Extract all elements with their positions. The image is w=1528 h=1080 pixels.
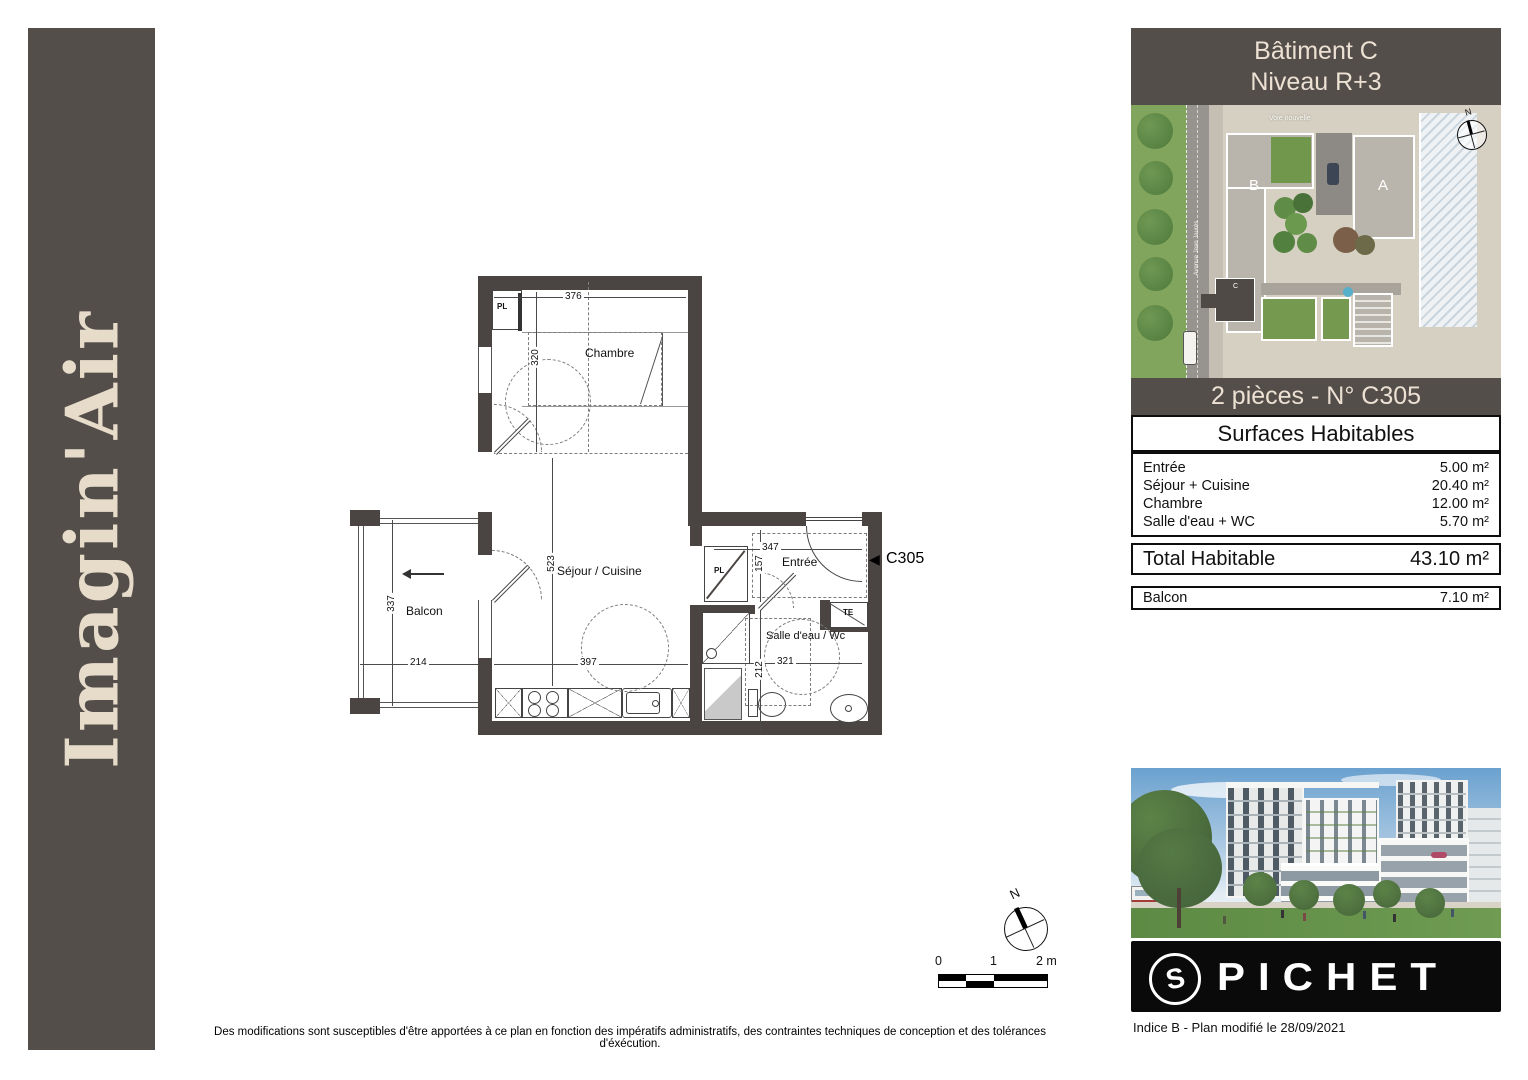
balcony-door-swing xyxy=(492,550,542,600)
render-person xyxy=(1393,914,1396,922)
footer-disclaimer: Des modifications sont susceptibles d'êt… xyxy=(200,1026,1060,1050)
row-value: 5.00 m² xyxy=(1440,459,1489,477)
wall-left-2 xyxy=(478,393,492,452)
render-tree xyxy=(1373,880,1401,908)
surfaces-title-text: Surfaces Habitables xyxy=(1218,421,1415,446)
site-sidewalk xyxy=(1209,105,1223,378)
room-label-sejour: Séjour / Cuisine xyxy=(557,564,642,578)
site-bus xyxy=(1183,331,1197,365)
wall-entree-top xyxy=(702,512,806,526)
pichet-logo-emblem-letter: S xyxy=(1163,961,1188,996)
site-compass-north-label: N xyxy=(1464,106,1473,117)
dim-label: 321 xyxy=(775,656,796,667)
table-row: Entrée 5.00 m² xyxy=(1143,459,1489,477)
table-row: Séjour + Cuisine 20.40 m² xyxy=(1143,477,1489,495)
site-roof-terraces xyxy=(1353,293,1393,347)
site-tree xyxy=(1139,161,1173,195)
total-label: Total Habitable xyxy=(1143,548,1275,571)
balcony-box: Balcon 7.10 m² xyxy=(1131,586,1501,610)
partition-sdb-left xyxy=(690,605,702,735)
panel-header-line2: Niveau R+3 xyxy=(1131,67,1501,98)
kitchen-cabinet-1 xyxy=(495,688,522,718)
balcony-stub-top xyxy=(350,510,380,526)
pichet-logo-emblem-icon: S xyxy=(1149,953,1201,1005)
dim-label: 214 xyxy=(408,657,429,668)
site-roofgarden-1 xyxy=(1261,297,1317,341)
wall-left-4 xyxy=(478,658,492,721)
scale-tick-2: 2 m xyxy=(1036,954,1057,968)
scale-seg xyxy=(939,975,966,981)
unit-entry-marker-label: C305 xyxy=(886,550,924,568)
scale-tick-0: 0 xyxy=(935,954,942,968)
closet-chambre-label: PL xyxy=(497,302,507,311)
site-car xyxy=(1327,163,1339,185)
render-tree xyxy=(1333,884,1365,916)
unit-entry-marker-icon: ◀ xyxy=(869,551,880,568)
site-tree xyxy=(1137,305,1173,341)
dim-label: 397 xyxy=(578,657,599,668)
scale-tick-1: 1 xyxy=(990,954,997,968)
partition-top xyxy=(690,512,702,546)
room-label-chambre: Chambre xyxy=(585,346,634,360)
row-label: Chambre xyxy=(1143,495,1203,513)
row-label: Séjour + Cuisine xyxy=(1143,477,1250,495)
render-building-far-right xyxy=(1468,808,1501,904)
dim-label: 523 xyxy=(546,553,557,574)
row-value: 20.40 m² xyxy=(1432,477,1489,495)
site-bush-brown xyxy=(1355,235,1375,255)
render-lawn xyxy=(1131,908,1501,938)
kitchen-sink-drain xyxy=(652,700,659,707)
revision-note: Indice B - Plan modifié le 28/09/2021 xyxy=(1133,1020,1345,1035)
bed-edge xyxy=(662,333,663,406)
window-sejour xyxy=(478,600,492,658)
balcony-label: Balcon xyxy=(1143,590,1187,606)
dim-line-376 xyxy=(494,297,686,298)
render-person xyxy=(1223,916,1226,924)
render-person xyxy=(1451,909,1454,917)
render-tree xyxy=(1415,888,1445,918)
building-render-image xyxy=(1131,768,1501,938)
site-street-top-label: Voie nouvelle xyxy=(1269,115,1311,122)
north-compass-icon: N xyxy=(998,886,1054,952)
te-closet-label: TE xyxy=(843,608,853,617)
table-row: Salle d'eau + WC 5.70 m² xyxy=(1143,513,1489,531)
revision-text: Indice B - Plan modifié le 28/09/2021 xyxy=(1133,1020,1345,1035)
site-building-b-roofgarden xyxy=(1271,137,1311,183)
site-building-b-label: B xyxy=(1249,177,1259,194)
site-building-c-label: C xyxy=(1233,283,1238,290)
balcony-rail-left xyxy=(358,518,364,708)
render-building-roofline xyxy=(1226,782,1379,788)
scale-bar-rule xyxy=(938,974,1048,988)
surfaces-table: Entrée 5.00 m² Séjour + Cuisine 20.40 m²… xyxy=(1131,452,1501,537)
washbasin-drain xyxy=(845,705,852,712)
site-roofgarden-2 xyxy=(1321,297,1351,341)
site-tree xyxy=(1139,257,1173,291)
balcony-stub-bottom xyxy=(350,698,380,714)
scale-seg xyxy=(966,981,994,987)
hob-burner-1 xyxy=(528,691,541,704)
duct-shaft xyxy=(704,668,742,720)
window-chambre xyxy=(478,347,492,393)
render-awning xyxy=(1431,852,1447,858)
site-tree xyxy=(1137,113,1173,149)
dim-label: 157 xyxy=(754,553,765,574)
dim-label: 376 xyxy=(563,291,584,302)
table-row: Chambre 12.00 m² xyxy=(1143,495,1489,513)
balcony-direction-arrowhead-icon xyxy=(402,569,411,579)
row-value: 12.00 m² xyxy=(1432,495,1489,513)
site-building-c-wing xyxy=(1201,294,1217,308)
wall-right xyxy=(868,512,882,735)
site-compass-ring xyxy=(1457,120,1487,150)
chambre-axis-dashed xyxy=(588,282,589,452)
wall-left-1 xyxy=(478,276,492,347)
site-umbrella xyxy=(1343,287,1353,297)
kitchen-cabinet-3 xyxy=(672,688,690,718)
site-bush xyxy=(1297,233,1317,253)
render-person xyxy=(1303,913,1306,921)
row-value: 5.70 m² xyxy=(1440,513,1489,531)
render-tree-trunk xyxy=(1177,888,1181,928)
site-bush xyxy=(1293,193,1313,213)
render-tree xyxy=(1289,880,1319,910)
hob-burner-3 xyxy=(528,704,541,717)
dim-line-347 xyxy=(714,549,862,550)
wall-bottom xyxy=(478,721,882,735)
closet-entree-label: PL xyxy=(714,566,724,575)
kitchen-cabinet-2 xyxy=(568,688,622,718)
wall-left-3 xyxy=(478,512,492,555)
dim-label: 320 xyxy=(530,347,541,368)
row-label: Entrée xyxy=(1143,459,1186,477)
wall-right-upper xyxy=(688,276,702,526)
wall-chambre-top xyxy=(478,276,702,290)
balcony-direction-arrow-icon xyxy=(410,573,444,575)
room-label-salle-eau: Salle d'eau / Wc xyxy=(766,630,845,642)
sejour-turning-circle xyxy=(581,604,669,692)
site-plan-thumbnail: Avenue Jean Jaurès Voie nouvelle B A C N xyxy=(1131,105,1501,378)
scale-bar: 0 1 2 m xyxy=(930,954,1060,992)
row-label: Salle d'eau + WC xyxy=(1143,513,1255,531)
balcony-value: 7.10 m² xyxy=(1440,590,1489,606)
site-bush xyxy=(1273,231,1295,253)
scale-seg xyxy=(994,975,1047,981)
footer-disclaimer-text: Des modifications sont susceptibles d'êt… xyxy=(214,1026,1046,1050)
panel-header-line1: Bâtiment C xyxy=(1131,36,1501,67)
hob-burner-2 xyxy=(546,691,559,704)
site-tree xyxy=(1137,209,1173,245)
render-person xyxy=(1363,911,1366,919)
shower-drain xyxy=(706,648,717,659)
site-compass-icon: N xyxy=(1449,107,1493,157)
render-tree xyxy=(1243,872,1277,906)
room-label-balcon: Balcon xyxy=(406,604,443,618)
floor-plan: PL ◀ C305 PL TE xyxy=(0,0,1080,1080)
total-value: 43.10 m² xyxy=(1410,548,1489,571)
pichet-logo-text: PICHET xyxy=(1217,955,1449,999)
render-person xyxy=(1281,910,1284,918)
dim-label: 212 xyxy=(754,659,765,680)
unit-title-bar: 2 pièces - N° C305 xyxy=(1131,378,1501,415)
room-label-entree: Entrée xyxy=(782,555,817,569)
dim-label: 337 xyxy=(386,593,397,614)
pichet-logo: S PICHET xyxy=(1131,941,1501,1012)
chambre-floor-dashed xyxy=(494,453,688,454)
surfaces-title-box: Surfaces Habitables xyxy=(1131,415,1501,452)
unit-title-text: 2 pièces - N° C305 xyxy=(1211,382,1421,410)
closet-chambre-door xyxy=(518,293,522,331)
dim-line-320 xyxy=(536,292,537,452)
total-box: Total Habitable 43.10 m² xyxy=(1131,543,1501,575)
compass-north-label: N xyxy=(1007,885,1022,903)
dim-label: 347 xyxy=(760,542,781,553)
site-building-a-label: A xyxy=(1378,177,1388,194)
entry-door-leaf xyxy=(806,517,862,521)
panel-header: Bâtiment C Niveau R+3 xyxy=(1131,28,1501,105)
hob-burner-4 xyxy=(546,704,559,717)
site-street-left-label: Avenue Jean Jaurès xyxy=(1194,178,1200,318)
